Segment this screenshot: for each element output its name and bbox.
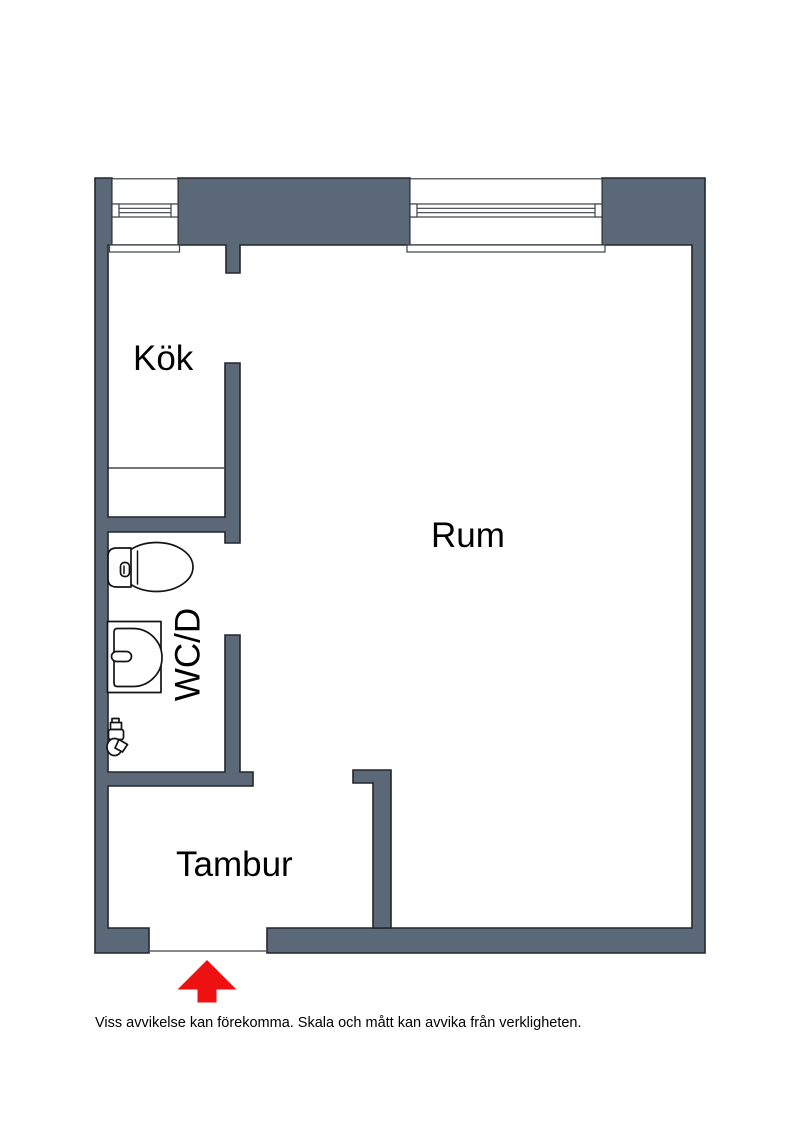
sink-icon: [108, 622, 163, 693]
window-icon: [110, 179, 180, 252]
room-label-tambur: Tambur: [176, 847, 293, 882]
wall-tambur-right: [353, 770, 391, 928]
disclaimer-text: Viss avvikelse kan förekomma. Skala och …: [95, 1014, 582, 1032]
room-label-rum: Rum: [431, 518, 505, 553]
window-icon: [407, 179, 605, 252]
entrance-arrow-icon: [178, 960, 237, 1003]
floor-plan-drawing: [0, 0, 800, 1131]
room-label-kok: Kök: [133, 341, 193, 376]
floor-plan-canvas: Kök Rum WC/D Tambur Viss avvikelse kan f…: [0, 0, 800, 1131]
room-label-wcd: WC/D: [171, 605, 206, 705]
wall-top-middle-with-stub: [178, 178, 410, 273]
valve-icon: [107, 719, 128, 756]
toilet-icon: [108, 543, 193, 592]
wall-top-right-right-bottom: [267, 178, 705, 953]
